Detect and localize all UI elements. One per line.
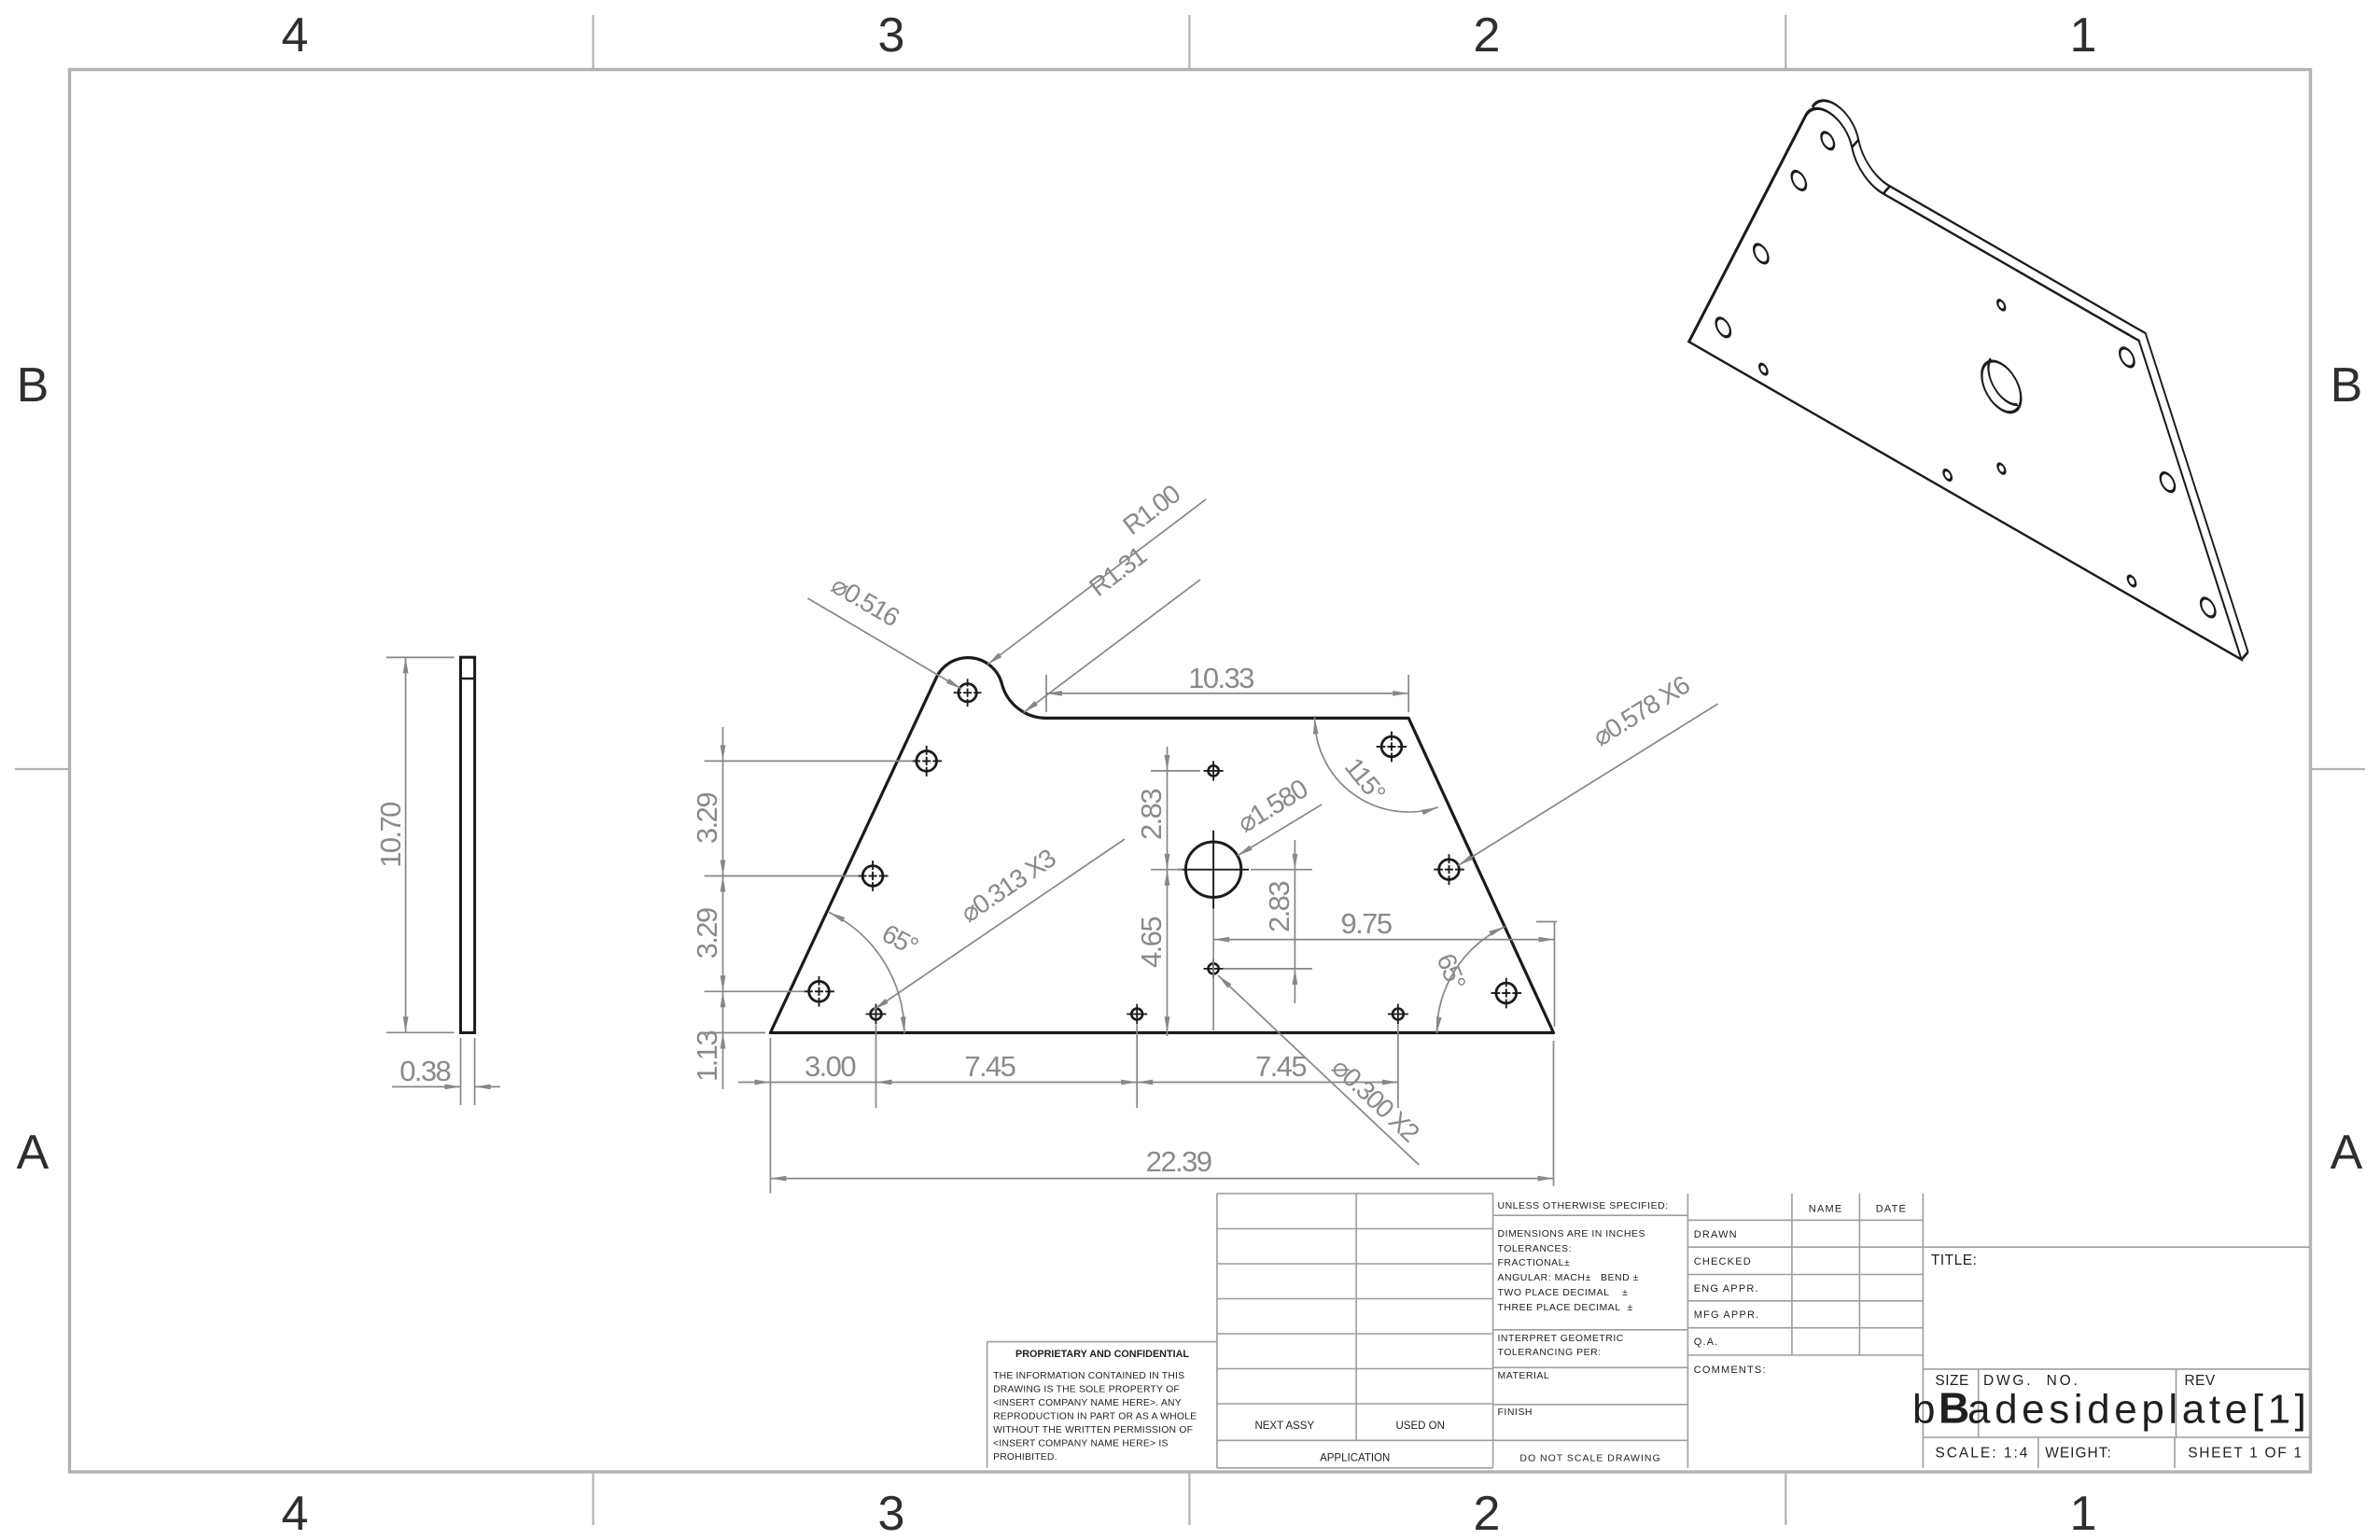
svg-text:FRACTIONAL±: FRACTIONAL± (1498, 1257, 1571, 1268)
svg-text:9.75: 9.75 (1341, 907, 1392, 940)
svg-text:<INSERT COMPANY NAME HERE> IS: <INSERT COMPANY NAME HERE> IS (993, 1439, 1169, 1449)
svg-text:1: 1 (2070, 8, 2097, 63)
svg-text:3: 3 (878, 8, 905, 63)
svg-text:4: 4 (282, 8, 309, 63)
svg-text:2: 2 (1474, 8, 1501, 63)
svg-text:<INSERT COMPANY NAME HERE>. A: <INSERT COMPANY NAME HERE>. ANY (993, 1398, 1182, 1408)
svg-text:INTERPRET GEOMETRIC: INTERPRET GEOMETRIC (1498, 1333, 1624, 1344)
svg-text:COMMENTS:: COMMENTS: (1694, 1365, 1767, 1376)
svg-text:TWO PLACE DECIMAL ±: TWO PLACE DECIMAL ± (1498, 1287, 1629, 1298)
svg-text:22.39: 22.39 (1146, 1145, 1211, 1178)
svg-text:PROHIBITED.: PROHIBITED. (993, 1452, 1057, 1463)
svg-text:NEXT ASSY: NEXT ASSY (1254, 1421, 1314, 1432)
svg-text:Q.A.: Q.A. (1694, 1337, 1719, 1348)
svg-text:UNLESS OTHERWISE SPECIFIED:: UNLESS OTHERWISE SPECIFIED: (1498, 1200, 1669, 1211)
svg-text:MFG APPR.: MFG APPR. (1694, 1309, 1760, 1321)
svg-text:B: B (2331, 358, 2363, 413)
svg-text:1: 1 (2070, 1487, 2097, 1540)
svg-text:ENG APPR.: ENG APPR. (1694, 1283, 1759, 1295)
svg-text:PROPRIETARY AND CONFIDENTIAL: PROPRIETARY AND CONFIDENTIAL (1015, 1349, 1189, 1360)
svg-text:SHEET 1 OF 1: SHEET 1 OF 1 (2188, 1446, 2303, 1462)
svg-text:3.29: 3.29 (691, 908, 723, 959)
svg-text:NAME: NAME (1809, 1204, 1843, 1215)
svg-text:REPRODUCTION IN PART OR AS A W: REPRODUCTION IN PART OR AS A WHOLE (993, 1412, 1197, 1422)
svg-text:1.13: 1.13 (691, 1031, 723, 1082)
svg-text:DATE: DATE (1876, 1204, 1907, 1215)
svg-text:10.70: 10.70 (374, 802, 407, 868)
svg-text:2: 2 (1474, 1487, 1501, 1540)
svg-text:TITLE:: TITLE: (1931, 1253, 1978, 1268)
svg-text:SCALE: 1:4: SCALE: 1:4 (1935, 1446, 2029, 1462)
svg-text:adesideplate[1]: adesideplate[1] (1967, 1387, 2310, 1433)
svg-text:7.45: 7.45 (964, 1050, 1015, 1083)
svg-text:3.00: 3.00 (805, 1050, 856, 1083)
svg-text:10.33: 10.33 (1188, 662, 1253, 694)
svg-text:TOLERANCING PER:: TOLERANCING PER: (1498, 1347, 1602, 1358)
svg-text:DIMENSIONS ARE IN INCHES: DIMENSIONS ARE IN INCHES (1498, 1228, 1645, 1239)
svg-text:A: A (2331, 1126, 2363, 1180)
svg-text:DRAWING IS THE SOLE PROPERTY O: DRAWING IS THE SOLE PROPERTY OF (993, 1385, 1180, 1395)
svg-text:APPLICATION: APPLICATION (1320, 1453, 1390, 1464)
svg-text:0.38: 0.38 (399, 1055, 450, 1087)
svg-text:4: 4 (282, 1487, 309, 1540)
svg-text:TOLERANCES:: TOLERANCES: (1498, 1243, 1572, 1254)
svg-text:THE INFORMATION CONTAINED IN T: THE INFORMATION CONTAINED IN THIS (993, 1371, 1184, 1381)
svg-text:FINISH: FINISH (1498, 1407, 1533, 1418)
svg-text:7.45: 7.45 (1255, 1050, 1306, 1083)
svg-text:3: 3 (878, 1487, 905, 1540)
svg-text:3.29: 3.29 (691, 793, 723, 844)
svg-text:B: B (17, 358, 49, 413)
svg-text:WITHOUT THE WRITTEN PERMISSION: WITHOUT THE WRITTEN PERMISSION OF (993, 1425, 1193, 1435)
svg-text:WEIGHT:: WEIGHT: (2045, 1446, 2112, 1462)
svg-text:DO NOT SCALE DRAWING: DO NOT SCALE DRAWING (1519, 1453, 1660, 1464)
svg-text:2.83: 2.83 (1135, 790, 1168, 840)
svg-text:A: A (17, 1126, 49, 1180)
svg-text:CHECKED: CHECKED (1694, 1256, 1752, 1267)
svg-text:b: b (1912, 1387, 1935, 1433)
svg-text:2.83: 2.83 (1263, 882, 1295, 932)
svg-text:4.65: 4.65 (1135, 917, 1168, 968)
svg-text:MATERIAL: MATERIAL (1498, 1370, 1550, 1381)
svg-text:DRAWN: DRAWN (1694, 1229, 1738, 1240)
svg-text:ANGULAR: MACH± BEND ±: ANGULAR: MACH± BEND ± (1498, 1272, 1639, 1283)
svg-text:USED ON: USED ON (1395, 1421, 1444, 1432)
svg-text:B: B (1939, 1384, 1969, 1433)
svg-text:THREE PLACE DECIMAL ±: THREE PLACE DECIMAL ± (1498, 1302, 1633, 1313)
